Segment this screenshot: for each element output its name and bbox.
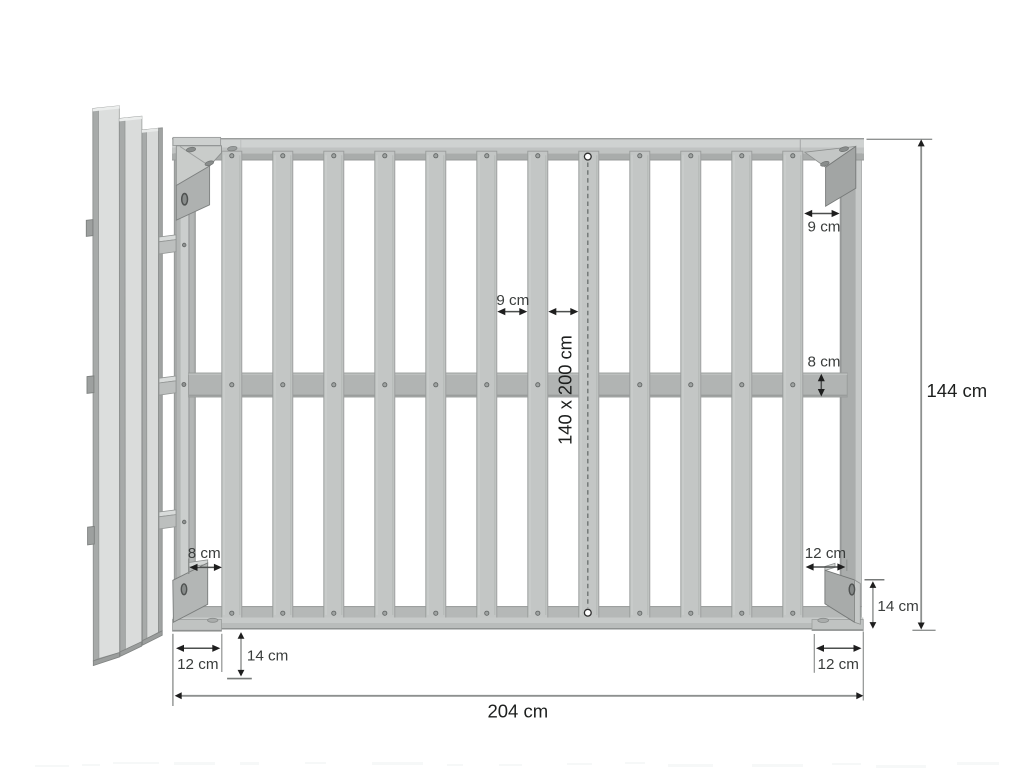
svg-text:8 cm: 8 cm [188,545,221,562]
svg-text:204 cm: 204 cm [487,701,548,722]
svg-text:12 cm: 12 cm [177,656,218,673]
svg-text:140 x 200 cm: 140 x 200 cm [555,335,576,445]
svg-text:14 cm: 14 cm [247,647,288,664]
svg-text:12 cm: 12 cm [805,545,846,562]
svg-text:8 cm: 8 cm [808,354,841,371]
svg-text:9 cm: 9 cm [496,292,529,309]
svg-text:144 cm: 144 cm [927,380,988,401]
svg-text:12 cm: 12 cm [818,656,859,673]
svg-text:14 cm: 14 cm [877,598,918,615]
svg-text:9 cm: 9 cm [808,219,841,236]
